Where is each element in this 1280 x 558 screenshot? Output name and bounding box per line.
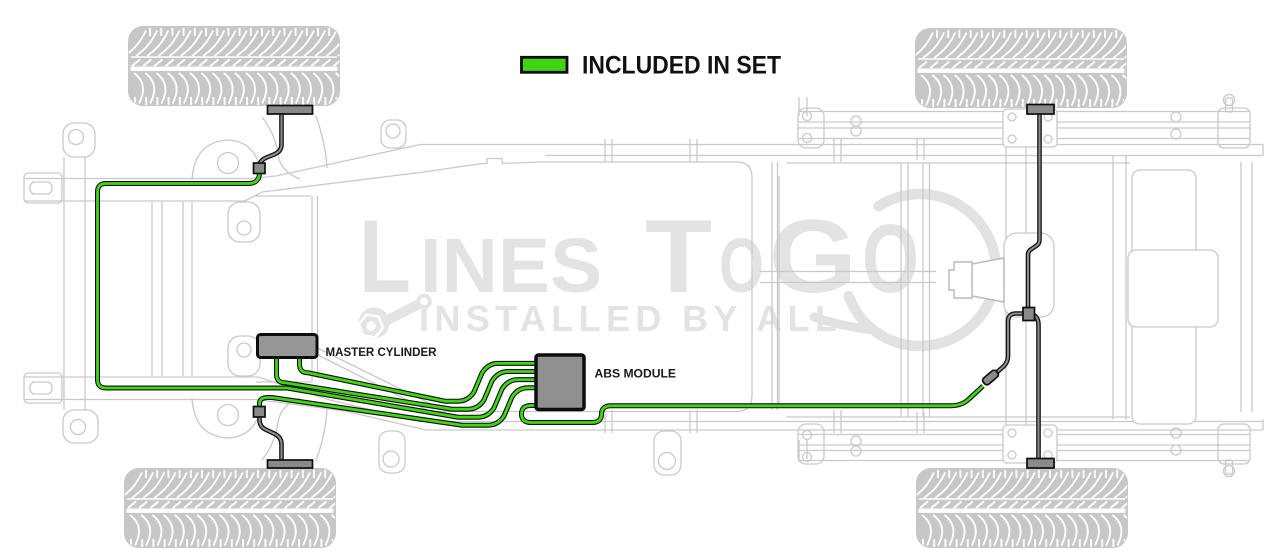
svg-text:O: O (862, 204, 919, 313)
svg-text:O: O (719, 223, 764, 309)
svg-text:L: L (359, 199, 411, 315)
svg-text:INES: INES (420, 223, 602, 309)
svg-text:ABS MODULE: ABS MODULE (595, 367, 677, 381)
svg-text:INSTALLED BY ALL: INSTALLED BY ALL (419, 298, 837, 339)
svg-text:MASTER CYLINDER: MASTER CYLINDER (326, 345, 437, 359)
svg-text:INCLUDED IN SET: INCLUDED IN SET (582, 52, 781, 80)
